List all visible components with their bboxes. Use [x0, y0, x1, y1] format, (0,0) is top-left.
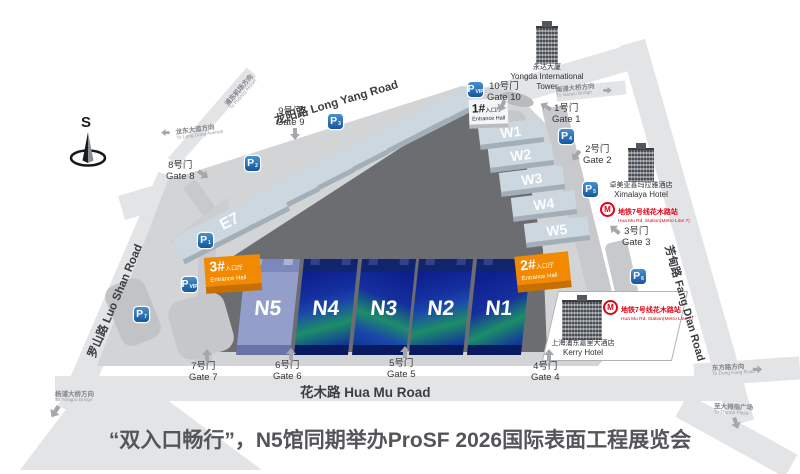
hall-n3: N3	[352, 259, 416, 355]
direction-dong-fang: 东方路方向To Dong Fang Road	[712, 363, 756, 378]
entrance-number: 3#	[209, 258, 226, 275]
ximalaya-hotel-icon	[628, 148, 654, 182]
hall-side	[294, 345, 349, 355]
entrance-number: 2#	[519, 256, 536, 274]
direction-arrow-icon	[753, 365, 763, 374]
metro-icon: M	[603, 300, 618, 315]
direction-arrow-icon	[161, 129, 169, 137]
hall-label: N5	[253, 297, 282, 321]
gate-1-label: 1号门Gate 1	[552, 103, 581, 125]
hall-roof	[361, 259, 416, 272]
gate-arrow-icon	[290, 128, 301, 140]
parking-icon-pvip-south: PVIP	[182, 277, 197, 292]
road-label-hua-mu: 花木路 Hua Mu Road	[300, 381, 431, 401]
page-title: “双入口畅行”，N5馆同期举办ProSF 2026国际表面工程展览会	[0, 424, 800, 454]
entrance-label-cn: 入口厅	[225, 265, 243, 272]
building-name-en: Ximalaya Hotel	[602, 190, 680, 200]
building-name-en: Kerry Hotel	[544, 348, 622, 358]
kerry-hotel-label: 上海浦东嘉里大酒店 Kerry Hotel	[544, 340, 622, 358]
hall-label: N1	[484, 297, 513, 321]
hall-side	[236, 345, 291, 355]
entrance-hall-2: 2#入口厅 Entrance Hall	[514, 251, 571, 292]
gate-arrow-icon	[543, 349, 554, 361]
gate-arrow-icon	[399, 346, 410, 358]
parking-icon-p7: P7	[134, 307, 149, 322]
kerry-hotel-icon	[562, 300, 602, 340]
direction-thumb-plaza: 至大拇指广场To Thumb Plaza	[714, 403, 753, 417]
metro-station-label: 地铁7号线花木路站 Hua Mu Rd. Station(Metro Line …	[618, 201, 690, 225]
gate-arrow-icon	[285, 348, 296, 360]
gate-5-label: 5号门Gate 5	[387, 358, 416, 380]
ximalaya-hotel-label: 卓美亚喜玛拉雅酒店 Ximalaya Hotel	[602, 182, 680, 200]
hall-roof	[418, 259, 473, 272]
hall-label: W2	[509, 145, 532, 163]
parking-icon-p6: P6	[631, 269, 646, 284]
parking-icon-p3: P3	[328, 114, 343, 129]
compass-icon	[66, 130, 110, 174]
entrance-number: 1#	[472, 101, 486, 115]
parking-icon-p5: P5	[583, 182, 598, 197]
hall-roof	[303, 259, 358, 272]
gate-7-label: 7号门Gate 7	[189, 361, 218, 383]
entrance-label-en: Entrance Hall	[472, 115, 505, 123]
gate-6-label: 6号门Gate 6	[273, 360, 302, 382]
hall-label: N3	[369, 297, 398, 321]
hall-label: W4	[532, 194, 555, 212]
compass-south-label: S	[81, 114, 91, 131]
hall-label: E7	[217, 210, 243, 235]
parking-icon-p1: P1	[198, 233, 213, 248]
expo-map: E1 E2 E3 E4 E5 E6 E7 W1 W2 W3 W4 W5 N5 N…	[0, 0, 800, 474]
gate-4-label: 4号门Gate 4	[531, 361, 560, 383]
hall-label: W5	[545, 220, 568, 238]
yongda-tower-icon	[536, 26, 558, 64]
parking-icon-p2: P2	[245, 156, 260, 171]
building-name-cn: 上海浦东嘉里大酒店	[544, 340, 622, 348]
direction-yangpu-bridge: 杨浦大桥方向To Yangpu Bridge	[55, 391, 94, 404]
hall-label: N2	[426, 297, 455, 321]
hall-side	[409, 345, 464, 355]
hall-label: W3	[520, 169, 543, 187]
parking-icon-pvip-north: PVIP	[468, 82, 483, 97]
metro-icon: M	[600, 202, 615, 217]
parking-icon-p4: P4	[559, 129, 574, 144]
gate-arrow-icon	[201, 349, 212, 361]
gate-2-label: 2号门Gate 2	[583, 144, 612, 166]
building-name-cn: 永达大厦	[509, 64, 585, 72]
entrance-hall-3: 3#入口厅 Entrance Hall	[204, 254, 262, 294]
hall-side	[467, 345, 522, 355]
hall-n2: N2	[409, 259, 473, 355]
gate-8-label: 8号门Gate 8	[166, 160, 195, 182]
gate-3-label: 3号门Gate 3	[622, 226, 651, 248]
hall-n4: N4	[294, 259, 358, 355]
hall-label: N4	[311, 297, 340, 321]
entrance-label-cn: 入口厅	[536, 263, 555, 271]
direction-arrow-icon	[603, 86, 611, 94]
building-name-cn: 卓美亚喜玛拉雅酒店	[602, 182, 680, 190]
